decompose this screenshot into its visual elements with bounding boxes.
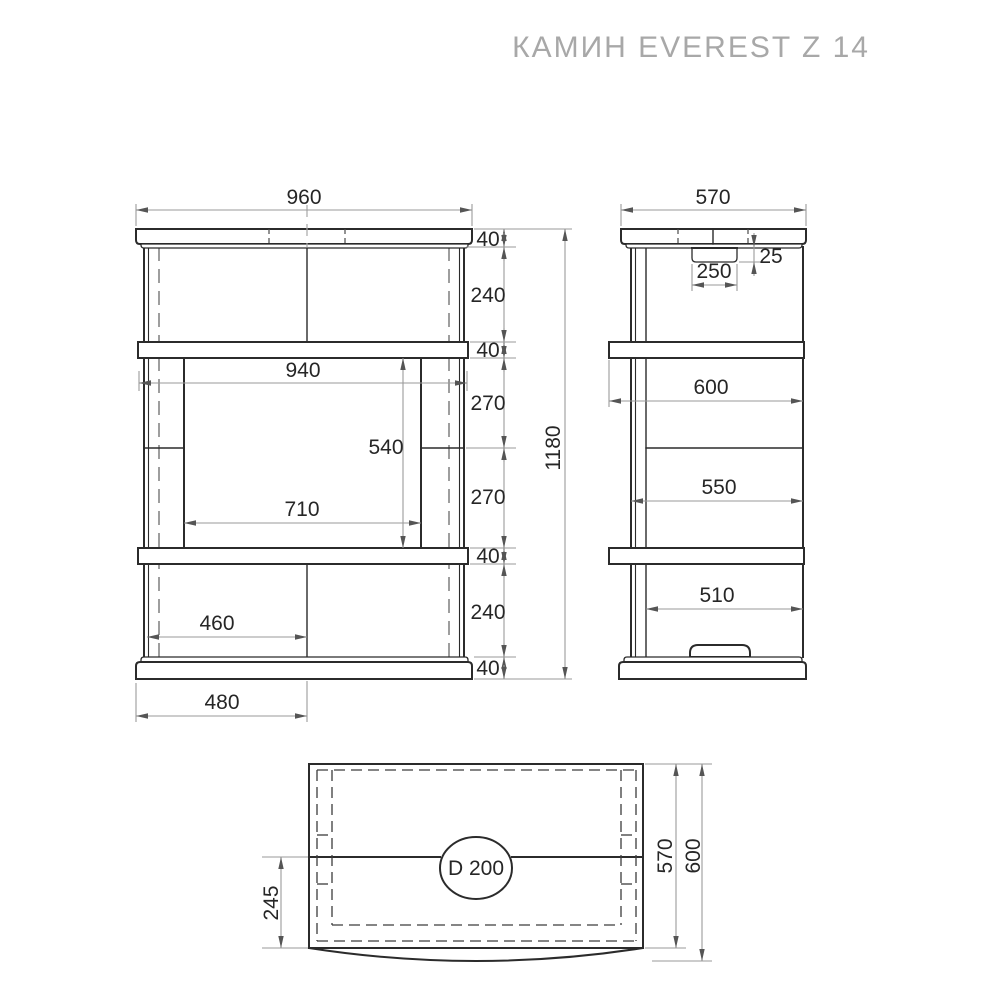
side-shelf-depth-label: 600 (693, 376, 728, 399)
dim-label: 40 (476, 339, 499, 362)
dim-label: 40 (476, 657, 499, 680)
front-shelf-lower (138, 548, 468, 564)
dim-label: 270 (470, 392, 505, 415)
top-flue-label: D 200 (448, 857, 504, 880)
top-total-depth-label: 600 (682, 838, 705, 873)
front-shelf-upper (138, 342, 468, 358)
side-body-depth-label: 550 (701, 476, 736, 499)
front-width-label: 960 (286, 186, 321, 209)
side-dim-inner-depth: 510 (646, 584, 803, 609)
drawing-title: КАМИН EVEREST Z 14 (512, 31, 870, 64)
side-dim-body-depth: 550 (631, 476, 803, 501)
drawing-sheet: КАМИН EVEREST Z 14 (0, 0, 1000, 1000)
front-base-half-label: 480 (204, 691, 239, 714)
side-view: 570 25 250 600 550 (609, 186, 806, 679)
side-collar-width-label: 250 (696, 260, 731, 283)
side-collar-height-label: 25 (759, 245, 782, 268)
side-shelf-upper (609, 342, 804, 358)
top-body-depth-label: 570 (654, 838, 677, 873)
drawing-canvas: КАМИН EVEREST Z 14 (0, 0, 1000, 1000)
front-top-cap (136, 205, 472, 248)
dim-label: 240 (470, 284, 505, 307)
top-flue-offset-label: 245 (260, 885, 283, 920)
front-opening-height-label: 540 (368, 436, 403, 459)
dim-label: 240 (470, 601, 505, 624)
side-inner-depth-label: 510 (699, 584, 734, 607)
side-shelf-lower (609, 548, 804, 564)
front-lower-inner-label: 460 (199, 612, 234, 635)
side-foot (690, 645, 750, 657)
side-cap-depth-label: 570 (695, 186, 730, 209)
front-dim-base-half: 480 (136, 681, 307, 722)
dim-label: 270 (470, 486, 505, 509)
front-view: 960 (136, 186, 572, 722)
front-total-height-label: 1180 (542, 425, 565, 470)
top-view: D 200 245 570 600 (260, 764, 712, 961)
front-dim-shelf-width: 940 (139, 359, 467, 391)
front-dim-opening-width: 710 (184, 498, 421, 523)
top-flue-hole: D 200 (440, 837, 512, 899)
front-height-labels: 40 240 40 270 270 40 240 40 (470, 228, 505, 680)
front-dim-width: 960 (136, 186, 472, 226)
dim-label: 40 (476, 228, 499, 251)
front-dim-lower-inner: 460 (147, 612, 307, 637)
dim-label: 40 (476, 545, 499, 568)
side-base (619, 657, 806, 679)
side-dim-shelf-depth: 600 (609, 360, 803, 407)
front-dim-total-height: 1180 (542, 229, 565, 679)
front-opening-width-label: 710 (284, 498, 319, 521)
side-dim-collar-width: 250 (692, 260, 737, 291)
front-base (136, 657, 472, 679)
front-body-lines (144, 247, 464, 679)
side-dim-cap-depth: 570 (621, 186, 806, 226)
top-dim-flue-offset: 245 (260, 857, 308, 948)
front-shelf-width-label: 940 (285, 359, 320, 382)
front-dim-opening-height: 540 (368, 358, 403, 548)
